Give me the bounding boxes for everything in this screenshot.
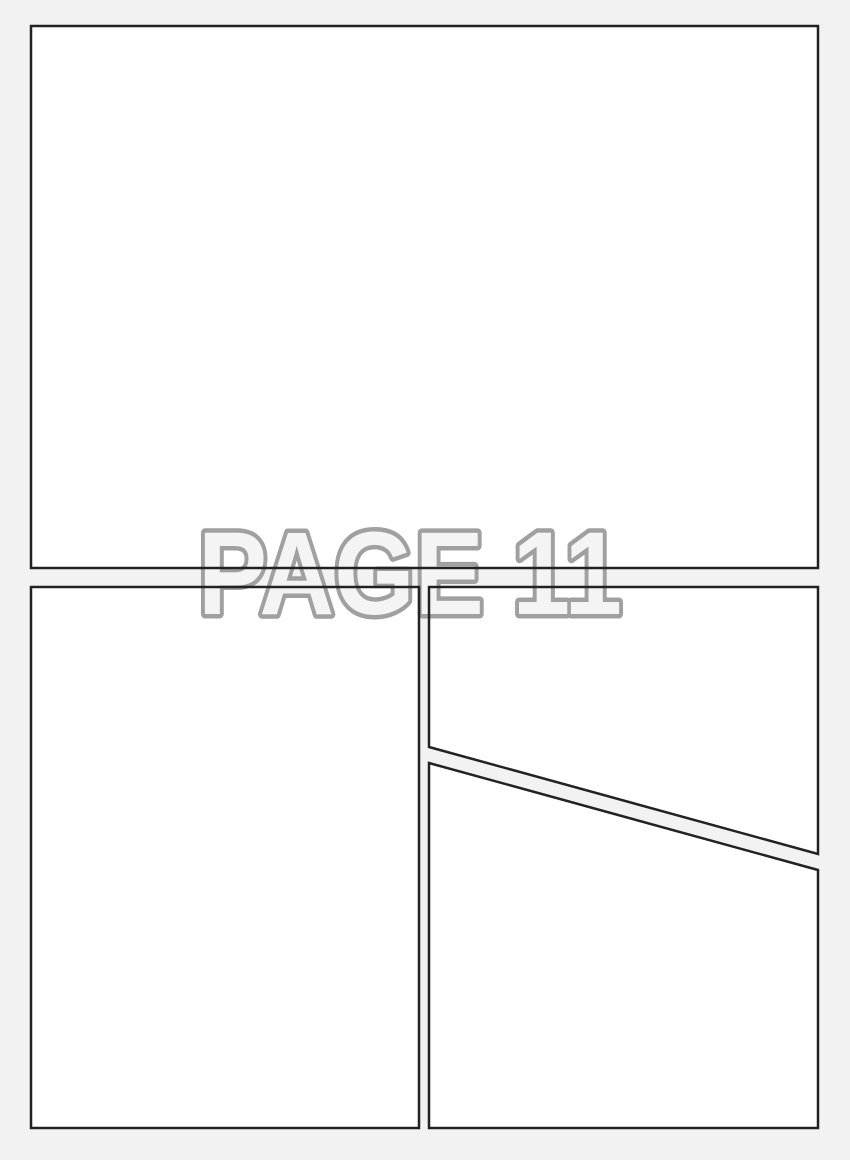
panel-top xyxy=(31,26,818,568)
panel-bottom-left xyxy=(31,587,419,1128)
comic-page-template: PAGE 11 xyxy=(0,0,850,1160)
page-number-label: PAGE 11 xyxy=(198,508,622,640)
